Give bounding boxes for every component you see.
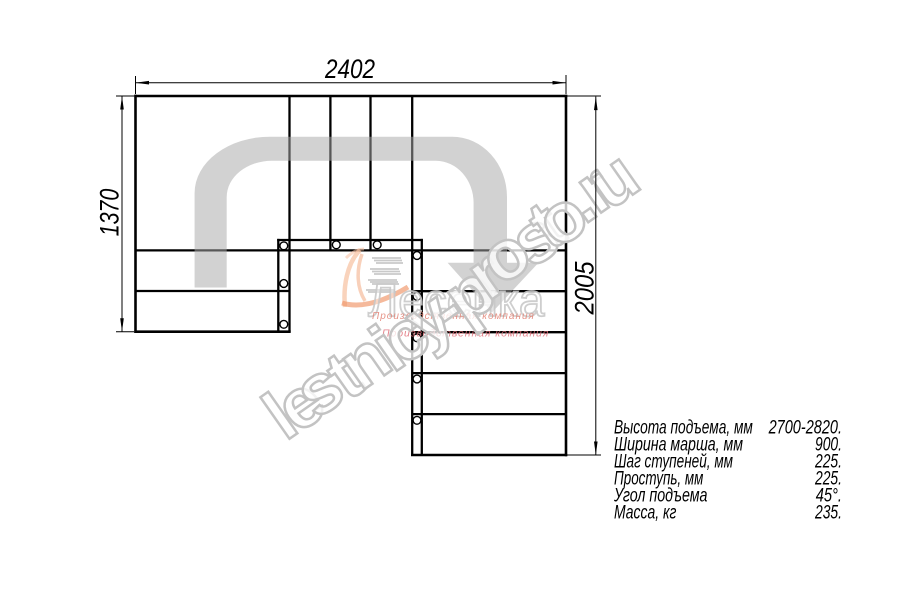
svg-text:1370: 1370 bbox=[95, 189, 125, 237]
svg-text:2402: 2402 bbox=[324, 54, 375, 84]
svg-text:235.: 235. bbox=[814, 503, 842, 524]
svg-text:Масса, кг: Масса, кг bbox=[614, 503, 676, 524]
svg-text:2005: 2005 bbox=[570, 261, 600, 315]
